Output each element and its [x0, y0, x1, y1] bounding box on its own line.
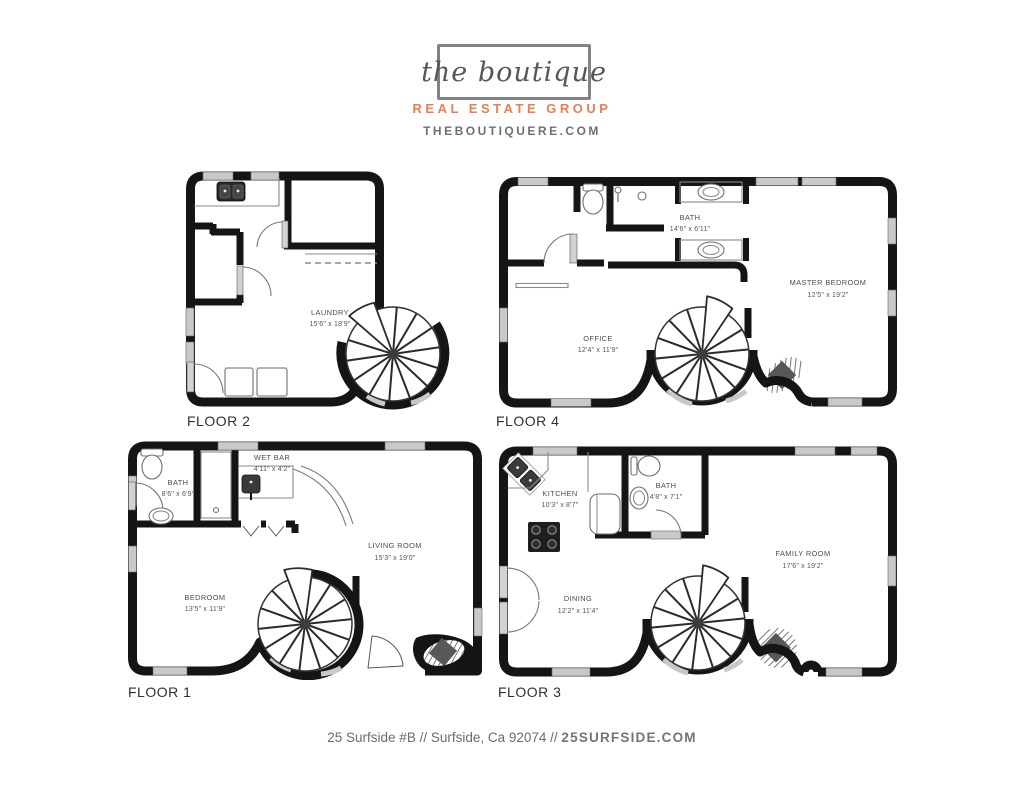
- room-dims-laundry: 15'6" x 18'9": [310, 321, 351, 328]
- room-dims-family: 17'6" x 19'2": [783, 563, 824, 570]
- stove-icon: [528, 522, 560, 552]
- floor-4-plan: BATH 14'6" x 6'11" MASTER BEDROOM 12'5" …: [496, 168, 900, 412]
- room-dims-office: 12'4" x 11'9": [578, 347, 619, 354]
- room-dims-bath: 4'8" x 7'1": [650, 494, 683, 501]
- room-name-kitchen: KITCHEN: [542, 489, 577, 498]
- room-name-bath: BATH: [680, 213, 701, 222]
- room-name-family: FAMILY ROOM: [775, 549, 830, 558]
- logo-tagline: REAL ESTATE GROUP: [0, 101, 1024, 116]
- room-name-laundry: LAUNDRY: [311, 308, 349, 317]
- room-name-wetbar: WET BAR: [254, 453, 290, 462]
- room-name-office: OFFICE: [583, 334, 613, 343]
- floor-4-label: FLOOR 4: [496, 413, 559, 429]
- logo-box: the boutique: [437, 44, 591, 100]
- room-dims-bath: 14'6" x 6'11": [670, 226, 711, 233]
- pedestal-sink-icon: [630, 487, 648, 509]
- floor-1-plan: BATH 8'6" x 6'9" WET BAR 4'11" x 4'2" LI…: [125, 436, 485, 680]
- toilet-icon: [631, 456, 660, 476]
- footer-address: 25 Surfside #B // Surfside, Ca 92074 //: [327, 730, 561, 745]
- room-name-dining: DINING: [564, 594, 592, 603]
- logo-text: the boutique: [421, 57, 607, 88]
- room-name-bath: BATH: [168, 478, 189, 487]
- flyer-page: the boutique REAL ESTATE GROUP THEBOUTIQ…: [0, 0, 1024, 791]
- floor-1-label: FLOOR 1: [128, 684, 191, 700]
- footer-address-line: 25 Surfside #B // Surfside, Ca 92074 // …: [0, 730, 1024, 745]
- room-dims-kitchen: 10'3" x 8'7": [542, 502, 579, 509]
- footer-website: 25SURFSIDE.COM: [561, 730, 696, 745]
- bath-sink-icon: [149, 508, 173, 524]
- floor-2-plan: LAUNDRY 15'6" x 18'9": [183, 166, 451, 412]
- room-name-bedroom: BEDROOM: [185, 593, 226, 602]
- room-name-living: LIVING ROOM: [368, 541, 422, 550]
- floor-2-label: FLOOR 2: [187, 413, 250, 429]
- room-dims-bath: 8'6" x 6'9": [162, 491, 195, 498]
- floor-3-plan: KITCHEN 10'3" x 8'7" BATH 4'8" x 7'1" FA…: [496, 436, 900, 680]
- toilet-icon: [583, 184, 603, 214]
- room-dims-living: 15'3" x 19'0": [375, 555, 416, 562]
- room-dims-bedroom: 13'5" x 11'9": [185, 606, 226, 613]
- room-dims-dining: 12'2" x 11'4": [558, 608, 599, 615]
- room-name-bath: BATH: [656, 481, 677, 490]
- room-dims-wetbar: 4'11" x 4'2": [254, 466, 291, 473]
- floor-3-label: FLOOR 3: [498, 684, 561, 700]
- room-dims-master: 12'5" x 19'2": [808, 292, 849, 299]
- toilet-icon: [141, 449, 163, 479]
- header-website: THEBOUTIQUERE.COM: [0, 124, 1024, 138]
- room-name-master: MASTER BEDROOM: [790, 278, 867, 287]
